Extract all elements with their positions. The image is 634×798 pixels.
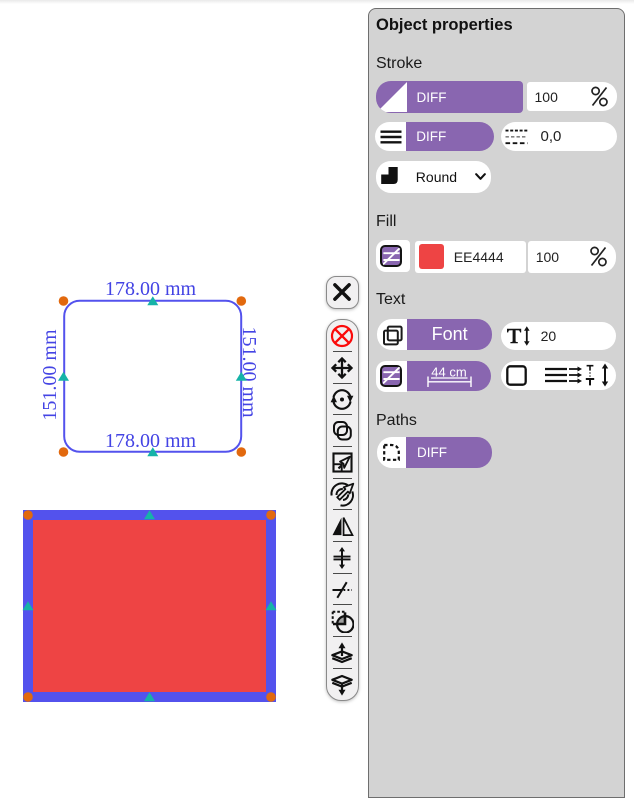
svg-text:178.00 mm: 178.00 mm	[105, 430, 197, 452]
svg-text:151.00 mm: 151.00 mm	[39, 329, 61, 421]
svg-text:44 cm: 44 cm	[432, 365, 467, 380]
svg-text:178.00 mm: 178.00 mm	[105, 278, 197, 300]
